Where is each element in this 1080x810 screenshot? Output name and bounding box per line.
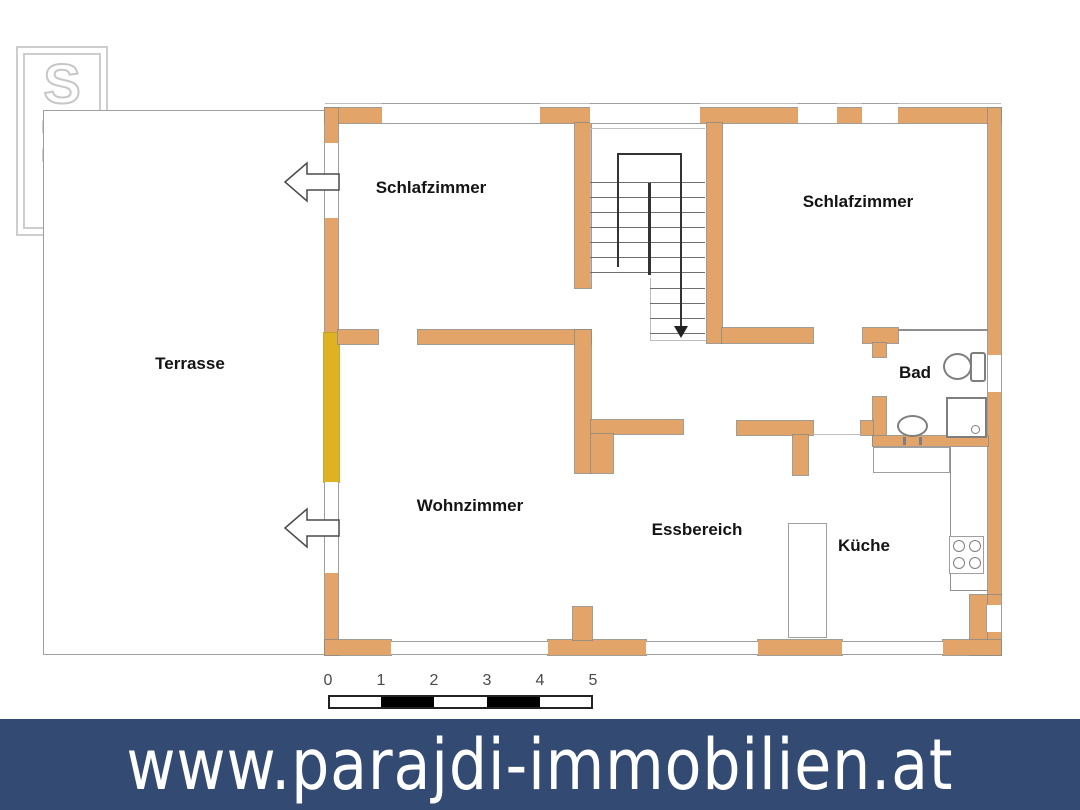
kitchen-counter-line — [950, 590, 988, 591]
room-label-terrasse: Terrasse — [140, 354, 240, 374]
shower-icon — [946, 397, 987, 438]
stair-rail — [617, 153, 619, 267]
stair-boundary — [590, 128, 591, 283]
toilet-tank — [970, 352, 986, 382]
room-label-essbereich: Essbereich — [647, 520, 747, 540]
entrance-arrow-icon — [283, 506, 341, 550]
stair-newel — [648, 183, 651, 275]
shower-drain — [971, 425, 980, 434]
corridor-door-line — [813, 434, 861, 435]
window — [391, 641, 548, 655]
stair-walkline — [680, 153, 682, 328]
website-url: www.parajdi-immobilien.at — [126, 724, 953, 806]
wall-right — [988, 392, 1001, 595]
floor-plan-page: S M P — [0, 0, 1080, 810]
stove-burner — [953, 557, 965, 569]
stair-boundary — [590, 128, 705, 129]
room-label-kueche: Küche — [832, 536, 896, 556]
entrance-arrow-icon — [283, 160, 341, 204]
wall-diningarea-north — [737, 421, 813, 435]
room-label-schlafzimmer-right: Schlafzimmer — [800, 192, 916, 212]
room-label-bad: Bad — [893, 363, 937, 383]
stair-tread — [650, 303, 705, 304]
wall-left-highlighted — [324, 333, 339, 482]
scale-label-1: 1 — [371, 672, 391, 690]
stove-burner — [969, 540, 981, 552]
scale-bar — [328, 695, 593, 709]
wall-bath-west-stub — [861, 421, 873, 435]
scale-bar-segment — [487, 697, 540, 707]
wall-right — [988, 108, 1001, 355]
window — [798, 103, 837, 124]
wall-top — [700, 108, 798, 123]
stove-burner — [953, 540, 965, 552]
wall-livingroom-doorway — [591, 434, 613, 473]
kitchen-counter — [873, 447, 950, 473]
wall-bottom — [548, 640, 646, 655]
bath-opening-line — [898, 329, 988, 331]
wall-bottom — [943, 640, 1001, 655]
wall-bedroom-left-south — [338, 330, 378, 344]
stair-boundary — [650, 340, 706, 341]
wall-left — [325, 218, 338, 333]
scale-bar-segment — [381, 697, 434, 707]
window — [862, 103, 898, 124]
sink-leg — [903, 437, 906, 445]
wall-bedroom-left-east — [575, 123, 591, 288]
wall-bath-north-stub — [873, 343, 886, 357]
sink-leg — [919, 437, 922, 445]
scale-label-4: 4 — [530, 672, 550, 690]
wall-top — [837, 108, 862, 123]
website-banner: www.parajdi-immobilien.at — [0, 719, 1080, 810]
wall-bottom — [758, 640, 842, 655]
kitchen-cabinet — [788, 523, 827, 638]
window — [590, 103, 700, 124]
wall-left — [325, 108, 338, 143]
toilet-icon — [943, 353, 972, 380]
wall-staircase-east — [707, 123, 722, 343]
scale-label-0: 0 — [318, 672, 338, 690]
scale-label-3: 3 — [477, 672, 497, 690]
stair-tread — [650, 318, 705, 319]
scale-label-5: 5 — [583, 672, 603, 690]
wall-top — [898, 108, 1001, 123]
stair-tread — [650, 288, 705, 289]
stair-down-arrow-icon — [674, 326, 688, 338]
wall-bedroom-right-south — [722, 328, 813, 343]
wall-livingroom-doorway — [591, 420, 683, 434]
window — [646, 641, 758, 655]
room-label-schlafzimmer-left: Schlafzimmer — [373, 178, 489, 198]
wall-bedroom-left-south — [418, 330, 591, 344]
sink-icon — [897, 415, 928, 437]
stove-burner — [969, 557, 981, 569]
window — [842, 641, 943, 655]
window — [986, 605, 1002, 632]
wall-top — [540, 108, 590, 123]
logo-letter-s: S — [43, 58, 80, 110]
wall-bottom — [325, 640, 391, 655]
wall-bath-north — [863, 328, 898, 343]
window — [382, 103, 540, 124]
stair-rail — [617, 153, 680, 155]
window — [987, 355, 1002, 392]
scale-label-2: 2 — [424, 672, 444, 690]
room-label-wohnzimmer: Wohnzimmer — [412, 496, 528, 516]
wall-diningarea-stub — [793, 435, 808, 475]
wall-livingroom-east — [575, 330, 591, 473]
wall-right — [988, 595, 1001, 605]
wall-livingroom-south-stub — [573, 607, 592, 640]
